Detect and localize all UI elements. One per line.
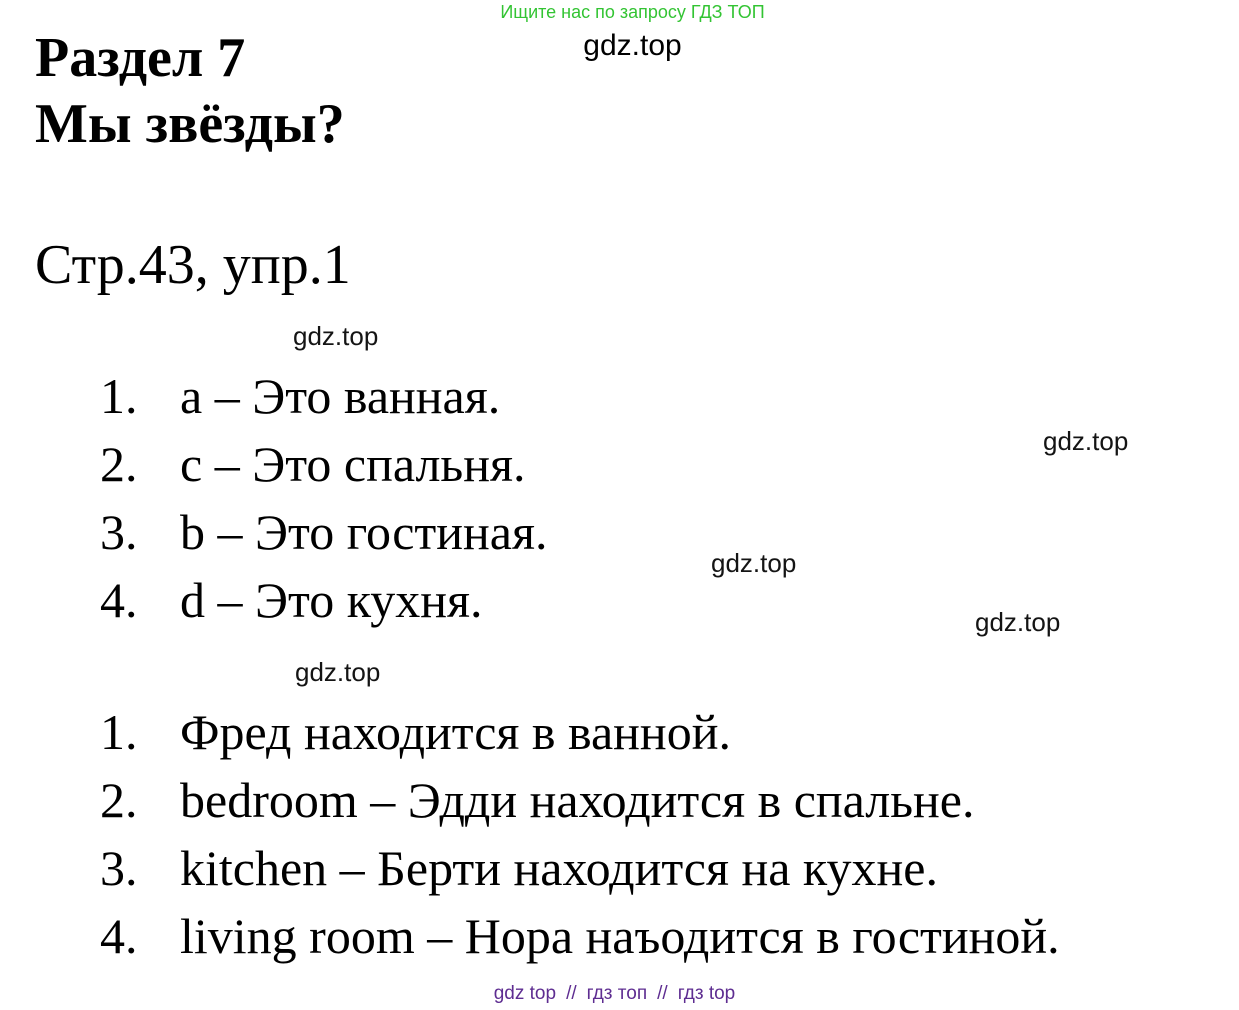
section-title-line2: Мы звёзды? xyxy=(35,91,345,157)
item-text: living room – Нора наъодится в гостиной. xyxy=(180,911,1060,961)
list-item: 4. living room – Нора наъодится в гостин… xyxy=(100,902,1060,970)
item-text: bedroom – Эдди находится в спальне. xyxy=(180,775,974,825)
footer-separator: // xyxy=(657,983,668,1005)
item-number: 4. xyxy=(100,575,180,625)
list-item: 1. Фред находится в ванной. xyxy=(100,698,1060,766)
item-number: 4. xyxy=(100,911,180,961)
footer-separator: // xyxy=(566,983,577,1005)
list-item: 3. kitchen – Берти находится на кухне. xyxy=(100,834,1060,902)
answer-page: Ищите нас по запросу ГДЗ ТОП gdz.top Раз… xyxy=(0,0,1239,1010)
item-number: 1. xyxy=(100,707,180,757)
footer-link-gdz-top-latin[interactable]: gdz top xyxy=(494,983,556,1004)
promo-banner: Ищите нас по запросу ГДЗ ТОП xyxy=(13,2,1239,23)
item-number: 3. xyxy=(100,843,180,893)
exercise-reference: Стр.43, упр.1 xyxy=(35,232,351,298)
item-number: 3. xyxy=(100,507,180,557)
list-item: 4. d – Это кухня. xyxy=(100,566,547,634)
section-title-line1: Раздел 7 xyxy=(35,25,345,91)
item-text: b – Это гостиная. xyxy=(180,507,547,557)
item-text: d – Это кухня. xyxy=(180,575,483,625)
section-title: Раздел 7 Мы звёзды? xyxy=(35,25,345,157)
list-item: 2. c – Это спальня. xyxy=(100,430,547,498)
answers-list-1: 1. a – Это ванная. 2. c – Это спальня. 3… xyxy=(100,362,547,634)
item-number: 1. xyxy=(100,371,180,421)
watermark: gdz.top xyxy=(711,549,796,579)
footer-link-gdz-top-cyrillic[interactable]: гдз топ xyxy=(587,983,648,1004)
watermark: gdz.top xyxy=(1043,427,1128,457)
item-text: kitchen – Берти находится на кухне. xyxy=(180,843,938,893)
item-number: 2. xyxy=(100,439,180,489)
item-number: 2. xyxy=(100,775,180,825)
list-item: 1. a – Это ванная. xyxy=(100,362,547,430)
footer: gdz top//гдз топ//гдз top xyxy=(0,983,1234,1005)
answers-list-2: 1. Фред находится в ванной. 2. bedroom –… xyxy=(100,698,1060,970)
list-item: 2. bedroom – Эдди находится в спальне. xyxy=(100,766,1060,834)
watermark: gdz.top xyxy=(293,322,378,352)
watermark: gdz.top xyxy=(295,658,380,688)
item-text: a – Это ванная. xyxy=(180,371,500,421)
watermark: gdz.top xyxy=(975,608,1060,638)
item-text: Фред находится в ванной. xyxy=(180,707,731,757)
list-item: 3. b – Это гостиная. xyxy=(100,498,547,566)
footer-link-gdz-top-mixed[interactable]: гдз top xyxy=(678,983,736,1004)
item-text: c – Это спальня. xyxy=(180,439,525,489)
